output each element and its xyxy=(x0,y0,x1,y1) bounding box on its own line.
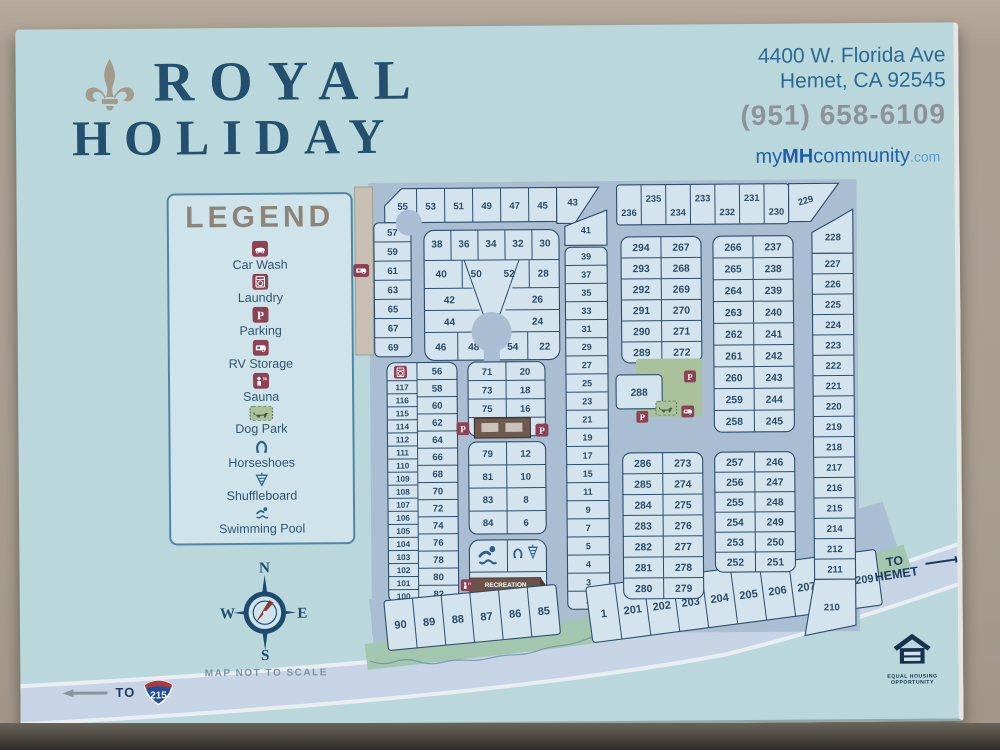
svg-text:285: 285 xyxy=(634,480,652,491)
lot-202: 202 xyxy=(652,599,672,613)
web-my: my xyxy=(755,146,782,168)
svg-text:47: 47 xyxy=(509,201,520,212)
svg-text:79: 79 xyxy=(482,449,493,460)
svg-text:53: 53 xyxy=(425,201,436,212)
svg-text:8: 8 xyxy=(523,495,528,506)
svg-text:215: 215 xyxy=(827,503,844,514)
lot-44: 44 xyxy=(444,317,456,328)
svg-text:21: 21 xyxy=(582,414,592,424)
lot-66: 66 xyxy=(432,452,443,463)
svg-text:4: 4 xyxy=(586,559,591,569)
legend-label: Car Wash xyxy=(233,258,288,272)
svg-text:23: 23 xyxy=(582,396,592,406)
lot-65: 65 xyxy=(388,304,399,315)
svg-text:22: 22 xyxy=(539,342,551,353)
svg-text:260: 260 xyxy=(725,373,743,384)
lot-38: 38 xyxy=(431,239,443,250)
svg-text:254: 254 xyxy=(727,518,745,529)
svg-text:68: 68 xyxy=(432,469,443,480)
to-215-direction: TO 215 xyxy=(62,678,174,706)
lot-285: 285 xyxy=(634,480,652,491)
lot-36: 36 xyxy=(458,239,470,250)
svg-text:111: 111 xyxy=(396,448,409,457)
svg-text:P: P xyxy=(539,427,545,437)
svg-text:52: 52 xyxy=(504,269,516,280)
svg-text:31: 31 xyxy=(582,324,592,334)
svg-text:18: 18 xyxy=(520,385,531,396)
svg-text:64: 64 xyxy=(432,435,443,446)
shield-number: 215 xyxy=(150,690,167,701)
svg-text:211: 211 xyxy=(827,564,843,575)
lot-56: 56 xyxy=(432,366,443,377)
svg-text:218: 218 xyxy=(826,442,842,453)
svg-text:80: 80 xyxy=(433,572,444,583)
svg-text:6: 6 xyxy=(523,518,528,529)
svg-text:286: 286 xyxy=(634,459,652,470)
svg-text:238: 238 xyxy=(765,264,783,275)
shuffleboard-icon xyxy=(254,472,270,488)
svg-text:85: 85 xyxy=(537,605,550,618)
lot-204: 204 xyxy=(710,592,731,606)
legend-label: Dog Park xyxy=(235,422,287,436)
lot-262: 262 xyxy=(725,330,743,341)
lot-39: 39 xyxy=(581,251,591,261)
svg-text:292: 292 xyxy=(633,285,651,296)
svg-text:114: 114 xyxy=(396,422,410,431)
legend-item-horseshoe: Horseshoes xyxy=(228,439,295,473)
lot-264: 264 xyxy=(725,286,743,297)
svg-text:115: 115 xyxy=(396,409,410,418)
lot-288: 288 xyxy=(616,375,662,409)
lot-236: 236 xyxy=(621,208,637,218)
svg-text:P: P xyxy=(687,372,693,382)
svg-text:3: 3 xyxy=(586,577,591,587)
lot-83: 83 xyxy=(483,495,494,506)
lot-54: 54 xyxy=(507,342,519,353)
lot-7: 7 xyxy=(586,523,591,533)
svg-text:7: 7 xyxy=(586,523,591,533)
svg-text:90: 90 xyxy=(394,619,407,632)
svg-text:202: 202 xyxy=(652,599,672,613)
svg-text:86: 86 xyxy=(509,608,522,621)
svg-text:117: 117 xyxy=(395,383,409,392)
lot-245: 245 xyxy=(766,417,784,428)
svg-text:46: 46 xyxy=(435,342,447,353)
svg-text:274: 274 xyxy=(674,479,692,490)
svg-text:P: P xyxy=(257,310,264,322)
lot-252: 252 xyxy=(727,558,745,569)
lot-270: 270 xyxy=(673,306,691,317)
svg-text:109: 109 xyxy=(396,475,410,484)
lot-265: 265 xyxy=(725,264,743,275)
svg-text:63: 63 xyxy=(387,285,398,296)
svg-text:269: 269 xyxy=(673,285,691,296)
svg-text:250: 250 xyxy=(767,537,785,548)
lot-294: 294 xyxy=(632,243,650,254)
legend-item-rv: RV Storage xyxy=(229,340,294,374)
lot-234: 234 xyxy=(670,207,686,217)
svg-text:24: 24 xyxy=(532,317,544,328)
svg-text:277: 277 xyxy=(675,542,693,553)
svg-text:75: 75 xyxy=(482,404,493,415)
lot-237: 237 xyxy=(764,242,782,253)
lot-64: 64 xyxy=(432,435,443,446)
svg-text:102: 102 xyxy=(397,566,411,575)
svg-text:10: 10 xyxy=(520,472,531,483)
svg-text:41: 41 xyxy=(581,225,591,235)
legend-item-sauna: Sauna xyxy=(243,373,279,406)
lot-276: 276 xyxy=(675,521,693,532)
legend-label: Parking xyxy=(239,324,281,338)
lot-85: 85 xyxy=(537,605,550,618)
lot-110: 110 xyxy=(396,462,410,471)
compass-rose: N E S W xyxy=(217,561,312,662)
lot-block: 2862732852742842752832762822772812782802… xyxy=(623,452,704,599)
svg-text:116: 116 xyxy=(396,396,410,405)
lot-267: 267 xyxy=(672,243,690,254)
svg-text:240: 240 xyxy=(765,308,783,319)
svg-text:265: 265 xyxy=(725,264,743,275)
legend-label: Laundry xyxy=(238,291,283,305)
legend-item-shuffleboard: Shuffleboard xyxy=(226,472,297,506)
svg-text:35: 35 xyxy=(581,288,591,298)
svg-text:66: 66 xyxy=(432,452,443,463)
lot-104: 104 xyxy=(396,540,410,549)
parking-icon: P xyxy=(636,411,648,423)
lot-273: 273 xyxy=(674,459,692,470)
legend-label: Horseshoes xyxy=(228,456,295,471)
svg-text:205: 205 xyxy=(739,588,759,602)
legend-item-parking: PParking xyxy=(239,307,282,340)
svg-text:266: 266 xyxy=(724,243,742,254)
lot-106: 106 xyxy=(396,514,410,523)
svg-text:74: 74 xyxy=(433,521,444,532)
lot-25: 25 xyxy=(582,378,592,388)
lot-35: 35 xyxy=(581,288,591,298)
parking-icon: P xyxy=(456,422,469,435)
lot-235: 235 xyxy=(646,194,662,204)
left-arrow-icon xyxy=(62,688,108,698)
svg-text:43: 43 xyxy=(567,197,578,208)
lot-117: 117 xyxy=(395,383,409,392)
lot-76: 76 xyxy=(433,538,444,549)
svg-text:222: 222 xyxy=(825,361,841,372)
lot-114: 114 xyxy=(396,422,410,431)
rv-icon xyxy=(681,405,694,417)
lot-30: 30 xyxy=(539,239,551,250)
svg-text:58: 58 xyxy=(432,383,443,394)
svg-text:232: 232 xyxy=(719,207,735,217)
svg-text:108: 108 xyxy=(396,488,410,497)
svg-text:276: 276 xyxy=(675,521,693,532)
svg-text:293: 293 xyxy=(633,264,651,275)
lot-263: 263 xyxy=(725,308,743,319)
svg-text:106: 106 xyxy=(396,514,410,523)
compass-n: N xyxy=(259,561,270,576)
scale-note: MAP NOT TO SCALE xyxy=(180,667,352,679)
lot-291: 291 xyxy=(633,306,651,317)
svg-text:231: 231 xyxy=(744,193,760,203)
lot-108: 108 xyxy=(396,488,410,497)
dog-park-icon xyxy=(656,401,677,415)
svg-text:219: 219 xyxy=(826,422,842,433)
lot-row: 236235234233232231230 xyxy=(617,184,789,225)
lot-284: 284 xyxy=(634,501,652,512)
svg-text:282: 282 xyxy=(635,542,653,553)
svg-text:243: 243 xyxy=(765,373,783,384)
laundry-icon xyxy=(394,366,407,379)
svg-text:83: 83 xyxy=(483,495,494,506)
svg-text:P: P xyxy=(640,412,646,422)
lot-216: 216 xyxy=(826,483,842,494)
svg-text:275: 275 xyxy=(674,500,692,511)
svg-text:248: 248 xyxy=(766,497,784,508)
svg-text:225: 225 xyxy=(825,300,842,311)
legend-label: Sauna xyxy=(243,390,279,404)
lot-52: 52 xyxy=(504,269,516,280)
lot-249: 249 xyxy=(767,517,785,528)
lot-89: 89 xyxy=(423,616,436,629)
compass-s: S xyxy=(261,647,270,662)
lot-261: 261 xyxy=(725,351,743,362)
lot-column: 57596163656769 xyxy=(374,223,412,357)
svg-text:81: 81 xyxy=(482,472,493,483)
lot-15: 15 xyxy=(583,469,593,479)
lot-22: 22 xyxy=(539,342,551,353)
lot-87: 87 xyxy=(480,611,493,624)
svg-text:288: 288 xyxy=(631,388,649,399)
lot-221: 221 xyxy=(826,381,843,392)
rv-icon xyxy=(253,340,269,356)
lot-251: 251 xyxy=(767,557,785,568)
legend-item-laundry: Laundry xyxy=(238,274,283,307)
equal-housing-house-icon xyxy=(891,633,933,667)
lot-102: 102 xyxy=(397,566,411,575)
svg-text:228: 228 xyxy=(825,232,841,243)
lot-105: 105 xyxy=(396,527,410,536)
svg-text:57: 57 xyxy=(387,228,398,239)
svg-text:290: 290 xyxy=(633,327,651,338)
lot-81: 81 xyxy=(482,472,493,483)
lot-253: 253 xyxy=(727,538,745,549)
lot-219: 219 xyxy=(826,422,842,433)
svg-text:84: 84 xyxy=(483,518,494,529)
svg-text:283: 283 xyxy=(635,521,653,532)
lot-34: 34 xyxy=(485,239,497,250)
svg-text:44: 44 xyxy=(444,317,456,328)
lot-269: 269 xyxy=(673,285,691,296)
phone-number: (951) 658-6109 xyxy=(616,98,946,133)
lot-9: 9 xyxy=(586,505,591,515)
lot-71: 71 xyxy=(482,367,493,378)
lot-206: 206 xyxy=(768,584,788,598)
lot-column: 2272262252242232222212202192182172162152… xyxy=(812,253,856,579)
svg-text:258: 258 xyxy=(726,417,744,428)
lot-88: 88 xyxy=(451,613,464,626)
lot-201: 201 xyxy=(623,603,643,617)
lot-58: 58 xyxy=(432,383,443,394)
svg-text:78: 78 xyxy=(433,555,444,566)
lot-4: 4 xyxy=(586,559,591,569)
svg-text:P: P xyxy=(460,425,466,435)
lot-239: 239 xyxy=(765,286,783,297)
svg-text:12: 12 xyxy=(520,449,531,460)
svg-text:69: 69 xyxy=(388,343,399,354)
svg-text:42: 42 xyxy=(444,295,456,306)
lot-227: 227 xyxy=(825,259,841,270)
sauna-icon xyxy=(461,579,473,591)
svg-text:210: 210 xyxy=(824,602,840,613)
lot-232: 232 xyxy=(719,207,735,217)
lot-256: 256 xyxy=(726,478,744,489)
legend-label: RV Storage xyxy=(229,357,294,372)
web-com: .com xyxy=(910,148,940,164)
lot-111: 111 xyxy=(396,448,409,457)
svg-text:40: 40 xyxy=(436,269,448,280)
svg-text:206: 206 xyxy=(768,584,788,598)
svg-text:87: 87 xyxy=(480,611,493,624)
svg-text:9: 9 xyxy=(586,505,591,515)
svg-text:32: 32 xyxy=(512,239,524,250)
svg-text:249: 249 xyxy=(767,517,785,528)
svg-text:54: 54 xyxy=(507,342,519,353)
lot-217: 217 xyxy=(826,463,842,474)
lot-78: 78 xyxy=(433,555,444,566)
svg-text:235: 235 xyxy=(646,194,662,204)
lot-3: 3 xyxy=(586,577,591,587)
lot-block: 257246256247255248254249253250252251 xyxy=(715,452,796,573)
svg-text:61: 61 xyxy=(387,266,398,277)
svg-text:62: 62 xyxy=(432,418,443,429)
lot-86: 86 xyxy=(509,608,522,621)
community-map-sign: 5553514947454341575961636567693937353331… xyxy=(15,22,963,728)
svg-text:267: 267 xyxy=(672,243,690,254)
lot-26: 26 xyxy=(532,295,544,306)
svg-text:34: 34 xyxy=(485,239,497,250)
lot-247: 247 xyxy=(766,477,784,488)
lot-21: 21 xyxy=(582,414,592,424)
svg-text:19: 19 xyxy=(582,432,592,442)
lot-57: 57 xyxy=(387,228,398,239)
lot-290: 290 xyxy=(633,327,651,338)
lot-116: 116 xyxy=(396,396,410,405)
svg-text:27: 27 xyxy=(582,360,592,370)
lot-277: 277 xyxy=(675,542,693,553)
lot-224: 224 xyxy=(825,320,842,331)
lot-45: 45 xyxy=(537,201,548,212)
lot-16: 16 xyxy=(520,404,531,415)
lot-28: 28 xyxy=(538,269,550,280)
svg-text:110: 110 xyxy=(396,462,410,471)
lot-block: 79818384121086 xyxy=(469,442,547,535)
svg-text:17: 17 xyxy=(583,451,593,461)
equal-housing-line2: OPPORTUNITY xyxy=(870,679,954,686)
lot-67: 67 xyxy=(388,323,399,334)
svg-text:239: 239 xyxy=(765,286,783,297)
lot-column: 3937353331292725232119171511975432 xyxy=(565,247,610,609)
svg-text:51: 51 xyxy=(453,201,464,212)
lot-59: 59 xyxy=(387,247,398,258)
svg-text:278: 278 xyxy=(675,563,693,574)
to-label: TO xyxy=(115,685,135,700)
svg-text:230: 230 xyxy=(769,207,785,217)
rv-icon xyxy=(353,264,369,277)
horseshoe-icon xyxy=(253,439,269,455)
svg-text:284: 284 xyxy=(634,501,652,512)
svg-text:49: 49 xyxy=(481,201,492,212)
svg-text:76: 76 xyxy=(433,538,444,549)
lot-241: 241 xyxy=(765,329,783,340)
lot-289: 289 xyxy=(633,348,651,359)
lot-block: 2662372652382642392632402622412612422602… xyxy=(713,236,795,433)
svg-text:216: 216 xyxy=(826,483,842,494)
lot-246: 246 xyxy=(766,457,784,468)
equal-housing-logo: EQUAL HOUSING OPPORTUNITY xyxy=(870,632,954,686)
svg-text:289: 289 xyxy=(633,348,651,359)
lot-80: 80 xyxy=(433,572,444,583)
lot-63: 63 xyxy=(387,285,398,296)
lot-79: 79 xyxy=(482,449,493,460)
lot-281: 281 xyxy=(635,563,653,574)
lot-60: 60 xyxy=(432,401,443,412)
svg-text:37: 37 xyxy=(581,270,591,280)
lot-109: 109 xyxy=(396,475,410,484)
svg-text:259: 259 xyxy=(726,395,744,406)
lot-242: 242 xyxy=(765,351,783,362)
lot-215: 215 xyxy=(827,503,844,514)
compass-e: E xyxy=(297,605,307,622)
svg-text:214: 214 xyxy=(827,524,844,535)
svg-text:212: 212 xyxy=(827,544,843,555)
legend-item-car-wash: Car Wash xyxy=(232,241,287,274)
interstate-215-shield: 215 xyxy=(142,678,174,705)
svg-text:65: 65 xyxy=(388,304,399,315)
svg-text:264: 264 xyxy=(725,286,743,297)
lot-248: 248 xyxy=(766,497,784,508)
svg-text:244: 244 xyxy=(766,395,784,406)
right-arrow-icon xyxy=(925,555,958,568)
lot-278: 278 xyxy=(675,563,693,574)
lot-226: 226 xyxy=(825,279,841,290)
svg-text:101: 101 xyxy=(397,579,411,588)
lot-250: 250 xyxy=(767,537,785,548)
lot-84: 84 xyxy=(483,518,494,529)
lot-12: 12 xyxy=(520,449,531,460)
laundry-icon xyxy=(252,274,268,290)
svg-text:59: 59 xyxy=(387,247,398,258)
svg-text:234: 234 xyxy=(670,207,686,217)
legend-item-pool: Swimming Pool xyxy=(219,504,305,538)
lot-47: 47 xyxy=(509,201,520,212)
lot-271: 271 xyxy=(673,327,691,338)
maintenance-building xyxy=(474,418,530,438)
lot-225: 225 xyxy=(825,300,842,311)
svg-text:73: 73 xyxy=(482,385,493,396)
lot-274: 274 xyxy=(674,479,692,490)
lot-75: 75 xyxy=(482,404,493,415)
svg-text:15: 15 xyxy=(583,469,593,479)
svg-text:291: 291 xyxy=(633,306,651,317)
brand-name-line1: ROYAL xyxy=(153,48,426,114)
lot-24: 24 xyxy=(532,317,544,328)
lot-240: 240 xyxy=(765,308,783,319)
address-line1: 4400 W. Florida Ave xyxy=(615,42,945,70)
svg-text:11: 11 xyxy=(583,487,593,497)
svg-text:112: 112 xyxy=(396,435,410,444)
compass-w: W xyxy=(220,605,235,622)
svg-text:28: 28 xyxy=(538,269,550,280)
svg-text:245: 245 xyxy=(766,417,784,428)
